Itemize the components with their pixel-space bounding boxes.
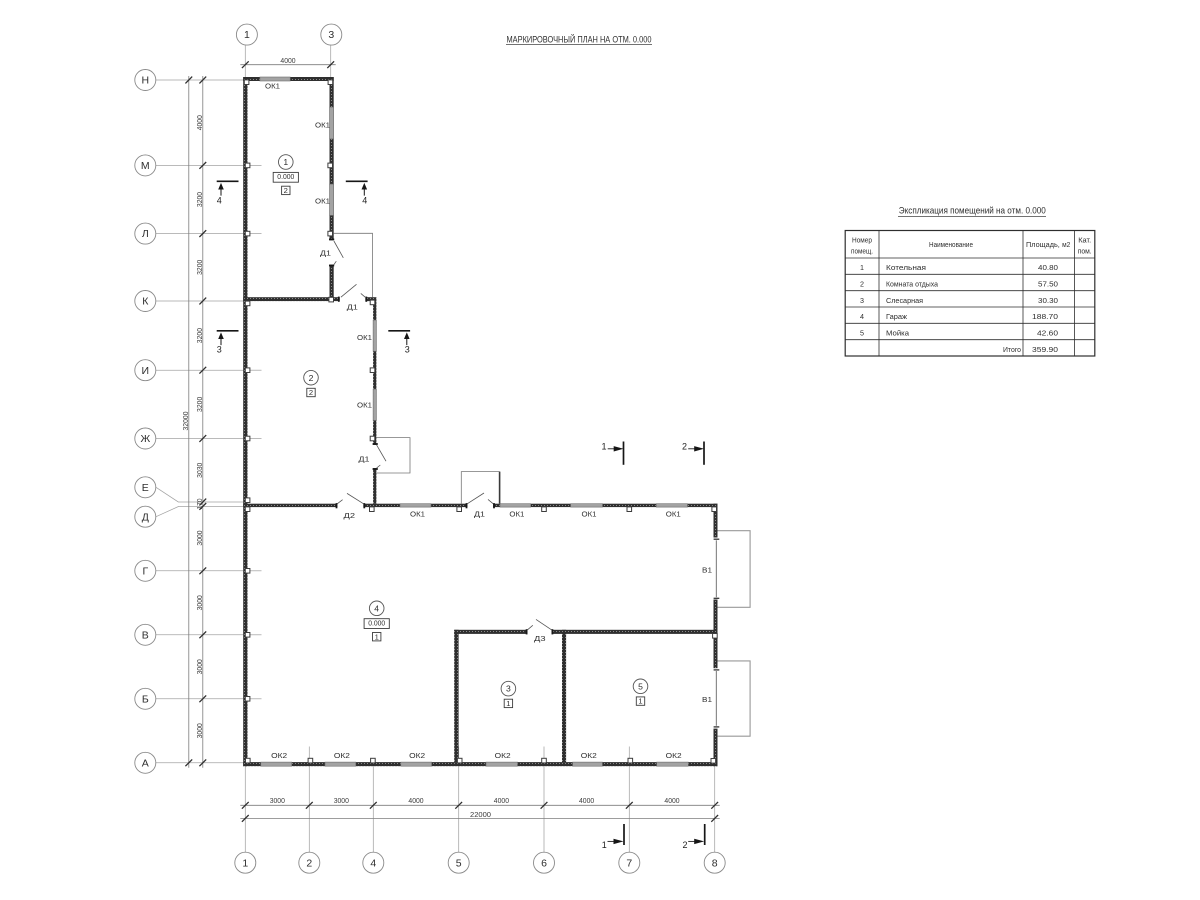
svg-text:3030: 3030 <box>195 463 204 478</box>
svg-text:Мойка: Мойка <box>886 329 910 338</box>
svg-text:ОК2: ОК2 <box>581 751 597 760</box>
svg-text:ОК1: ОК1 <box>666 510 681 519</box>
svg-text:ОК2: ОК2 <box>666 751 682 760</box>
svg-text:пом.: пом. <box>1078 247 1092 256</box>
svg-text:помещ.: помещ. <box>851 247 873 256</box>
svg-text:2: 2 <box>682 840 687 850</box>
svg-text:Комната отдыха: Комната отдыха <box>886 280 939 289</box>
svg-text:1: 1 <box>244 29 250 41</box>
svg-text:170: 170 <box>195 499 204 510</box>
svg-text:3200: 3200 <box>195 328 204 343</box>
svg-text:0.000: 0.000 <box>368 619 385 628</box>
svg-text:Площадь,: Площадь, <box>1026 240 1060 249</box>
svg-text:В1: В1 <box>702 566 712 575</box>
svg-text:Итого: Итого <box>1003 345 1021 354</box>
svg-text:1: 1 <box>638 697 642 706</box>
svg-text:32000: 32000 <box>181 412 190 431</box>
svg-text:3000: 3000 <box>334 796 349 805</box>
svg-text:м2: м2 <box>1062 240 1070 249</box>
svg-text:4: 4 <box>860 312 864 321</box>
svg-text:ОК2: ОК2 <box>271 751 287 760</box>
svg-text:3000: 3000 <box>195 659 204 674</box>
svg-text:Л: Л <box>142 228 149 240</box>
svg-text:3: 3 <box>328 29 334 41</box>
svg-text:ОК1: ОК1 <box>357 401 372 410</box>
svg-text:ОК1: ОК1 <box>410 510 425 519</box>
svg-text:188.70: 188.70 <box>1032 312 1058 321</box>
svg-text:1: 1 <box>860 263 864 272</box>
svg-text:ОК2: ОК2 <box>409 751 425 760</box>
svg-text:3200: 3200 <box>195 260 204 275</box>
svg-text:3: 3 <box>405 345 410 355</box>
svg-text:2: 2 <box>860 280 864 289</box>
svg-text:5: 5 <box>456 857 462 869</box>
svg-text:3: 3 <box>217 345 222 355</box>
svg-text:6: 6 <box>541 857 547 869</box>
svg-text:0.000: 0.000 <box>277 172 294 181</box>
svg-text:30.30: 30.30 <box>1038 296 1058 305</box>
svg-text:3000: 3000 <box>195 723 204 738</box>
svg-text:МАРКИРОВОЧНЫЙ ПЛАН НА ОТМ. 0.0: МАРКИРОВОЧНЫЙ ПЛАН НА ОТМ. 0.000 <box>507 34 652 46</box>
svg-text:1: 1 <box>506 699 510 708</box>
svg-text:Б: Б <box>142 693 149 705</box>
svg-text:2: 2 <box>682 441 687 451</box>
svg-text:3000: 3000 <box>270 796 285 805</box>
svg-text:7: 7 <box>626 857 632 869</box>
svg-text:4000: 4000 <box>664 796 679 805</box>
svg-text:5: 5 <box>860 329 864 338</box>
svg-text:Г: Г <box>142 565 148 577</box>
svg-text:Е: Е <box>142 482 149 494</box>
svg-text:Д3: Д3 <box>534 634 546 643</box>
svg-text:Слесарная: Слесарная <box>886 296 923 305</box>
svg-text:ОК1: ОК1 <box>582 510 597 519</box>
svg-text:4: 4 <box>217 196 222 206</box>
svg-text:4000: 4000 <box>494 796 509 805</box>
svg-text:М: М <box>141 160 150 172</box>
svg-text:1: 1 <box>283 157 288 167</box>
svg-text:Д1: Д1 <box>474 510 485 519</box>
svg-text:4: 4 <box>370 857 376 869</box>
svg-text:И: И <box>142 365 150 377</box>
svg-text:ОК1: ОК1 <box>509 510 524 519</box>
svg-text:4000: 4000 <box>280 56 295 65</box>
svg-text:ОК1: ОК1 <box>315 196 330 205</box>
svg-text:ОК1: ОК1 <box>357 333 372 342</box>
svg-text:К: К <box>142 296 149 308</box>
svg-text:Д1: Д1 <box>320 248 331 257</box>
svg-text:2: 2 <box>306 857 312 869</box>
svg-text:Гараж: Гараж <box>886 312 908 321</box>
svg-text:А: А <box>142 757 149 769</box>
svg-text:57.50: 57.50 <box>1038 280 1058 289</box>
svg-text:ОК1: ОК1 <box>315 120 330 129</box>
svg-text:Кат.: Кат. <box>1078 236 1091 245</box>
svg-text:ОК2: ОК2 <box>334 751 350 760</box>
svg-text:Н: Н <box>142 75 150 87</box>
svg-text:4: 4 <box>362 196 367 206</box>
svg-text:4000: 4000 <box>408 796 423 805</box>
svg-text:3: 3 <box>860 296 864 305</box>
svg-text:ОК1: ОК1 <box>265 82 280 91</box>
svg-text:5: 5 <box>638 681 643 691</box>
svg-text:Д1: Д1 <box>347 302 358 311</box>
svg-text:1: 1 <box>602 840 607 850</box>
svg-text:Ж: Ж <box>140 433 150 445</box>
svg-text:ОК2: ОК2 <box>495 751 511 760</box>
svg-text:3200: 3200 <box>195 397 204 412</box>
svg-text:2: 2 <box>309 373 314 383</box>
svg-text:1: 1 <box>242 857 248 869</box>
svg-text:4000: 4000 <box>579 796 594 805</box>
svg-text:В: В <box>142 629 149 641</box>
svg-text:42.60: 42.60 <box>1037 329 1058 338</box>
svg-text:1: 1 <box>601 441 606 451</box>
svg-text:359.90: 359.90 <box>1032 345 1058 354</box>
svg-text:40.80: 40.80 <box>1038 263 1058 272</box>
svg-text:8: 8 <box>712 857 718 869</box>
svg-text:2: 2 <box>309 388 313 397</box>
svg-text:Экспликация помещений на отм.: Экспликация помещений на отм. 0.000 <box>899 206 1046 216</box>
svg-text:Д2: Д2 <box>344 511 356 520</box>
svg-text:4: 4 <box>374 603 379 613</box>
svg-text:Д1: Д1 <box>359 454 370 463</box>
svg-text:Котельная: Котельная <box>886 263 926 272</box>
svg-text:2: 2 <box>284 186 288 195</box>
svg-text:Номер: Номер <box>852 236 872 245</box>
svg-text:22000: 22000 <box>470 810 491 819</box>
svg-text:Наименование: Наименование <box>929 240 973 249</box>
svg-text:3200: 3200 <box>195 192 204 207</box>
svg-text:4000: 4000 <box>195 115 204 130</box>
svg-text:В1: В1 <box>702 695 712 704</box>
svg-text:1: 1 <box>375 632 379 641</box>
svg-text:3000: 3000 <box>195 595 204 610</box>
svg-text:3: 3 <box>506 684 511 694</box>
svg-text:3000: 3000 <box>195 530 204 545</box>
svg-text:Д: Д <box>142 511 149 523</box>
